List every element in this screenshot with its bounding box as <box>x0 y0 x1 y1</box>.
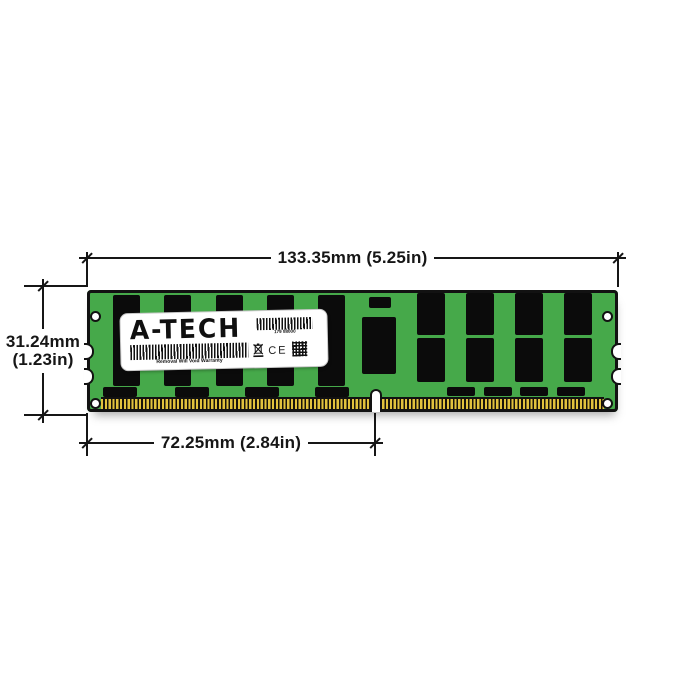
memory-chip <box>417 293 445 335</box>
label-warning-text: Removal Will Void Warranty <box>147 358 232 365</box>
weee-bin-icon <box>252 341 264 357</box>
product-diagram: 133.35mm (5.25in) 31.24mm (1.23in) 72.25… <box>0 0 700 700</box>
dimension-line: 133.35mm (5.25in) <box>79 249 626 267</box>
memory-chip <box>564 293 592 335</box>
component-chip <box>245 387 279 397</box>
key-notch <box>370 389 382 412</box>
memory-chip <box>515 338 543 382</box>
edge-notch <box>84 368 94 385</box>
dimension-label-pin-offset: 72.25mm (2.84in) <box>161 433 301 453</box>
dimension-label-width: 133.35mm (5.25in) <box>278 248 428 268</box>
mounting-hole <box>602 398 613 409</box>
component-chip <box>315 387 349 397</box>
label-serial: 179 88000 <box>267 329 303 334</box>
memory-chip <box>466 293 494 335</box>
dimension-line-segment <box>434 257 626 259</box>
mounting-hole <box>602 311 613 322</box>
memory-chip <box>564 338 592 382</box>
dimension-label-height-in: (1.23in) <box>6 351 80 369</box>
dimension-line: 31.24mm (1.23in) <box>8 279 78 423</box>
edge-notch <box>84 343 94 360</box>
register-chip <box>362 317 396 374</box>
component-chip <box>447 387 475 396</box>
memory-module: A-TECH 179 88000 CE Removal Will Void Wa… <box>87 290 618 412</box>
mounting-hole <box>90 398 101 409</box>
component-chip <box>103 387 137 397</box>
qr-code-icon <box>292 341 307 356</box>
component-chip <box>369 297 391 308</box>
ce-mark: CE <box>268 345 288 357</box>
dimension-label-height-mm: 31.24mm <box>6 333 80 351</box>
memory-chip <box>466 338 494 382</box>
mounting-hole <box>90 311 101 322</box>
edge-notch <box>611 343 621 360</box>
component-chip <box>557 387 585 396</box>
component-chip <box>484 387 512 396</box>
component-chip <box>520 387 548 396</box>
memory-chip <box>515 293 543 335</box>
brand-logo: A-TECH <box>129 313 241 346</box>
barcode-small-icon <box>257 317 313 330</box>
dimension-line-segment <box>79 257 271 259</box>
dimension-line-segment <box>79 442 154 444</box>
product-label: A-TECH 179 88000 CE Removal Will Void Wa… <box>120 310 327 371</box>
edge-notch <box>611 368 621 385</box>
memory-chip <box>417 338 445 382</box>
pin-strip <box>101 397 604 409</box>
component-chip <box>175 387 209 397</box>
dimension-line: 72.25mm (2.84in) <box>79 434 383 452</box>
